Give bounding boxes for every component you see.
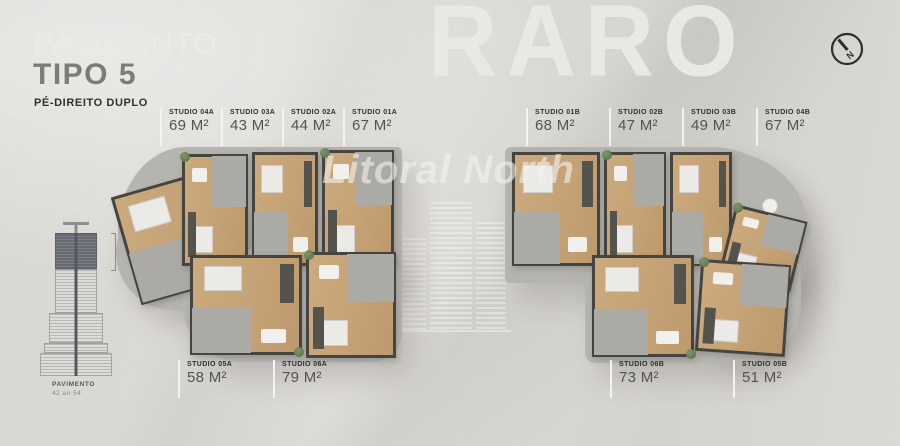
- floor-plan-unit-05a: [190, 255, 302, 355]
- building-caption-title: PAVIMENTO: [52, 380, 95, 389]
- floor-plan-unit-03b: [670, 152, 732, 266]
- unit-name: STUDIO 04A: [169, 109, 214, 116]
- plant-icon: [304, 250, 314, 260]
- compass-north-label: N: [845, 49, 856, 61]
- plant-icon: [180, 152, 190, 162]
- unit-name: STUDIO 04B: [765, 109, 810, 116]
- skyline-tower-icon: [476, 222, 506, 330]
- unit-label-studio-04b: STUDIO 04B 67 M²: [756, 108, 810, 146]
- unit-area: 58 M²: [187, 369, 232, 386]
- unit-name: STUDIO 02A: [291, 109, 336, 116]
- skyline-watermark: [392, 192, 512, 332]
- floor-range-bracket: [111, 233, 116, 271]
- unit-label-studio-05b: STUDIO 05B 51 M²: [733, 360, 787, 398]
- floor-plan-unit-02b: [604, 152, 666, 266]
- unit-name: STUDIO 01A: [352, 109, 397, 116]
- floor-plan-unit-01b: [512, 152, 600, 266]
- plant-icon: [699, 257, 710, 268]
- unit-label-studio-03b: STUDIO 03B 49 M²: [682, 108, 736, 146]
- unit-area: 69 M²: [169, 117, 214, 134]
- unit-area: 47 M²: [618, 117, 663, 134]
- unit-name: STUDIO 06A: [282, 361, 327, 368]
- unit-name: STUDIO 06B: [619, 361, 664, 368]
- unit-label-studio-03a: STUDIO 03A 43 M²: [221, 108, 275, 146]
- skyline-baseline: [392, 330, 512, 332]
- plant-icon: [294, 347, 304, 357]
- skyline-tower-icon: [430, 202, 472, 330]
- plant-icon: [320, 148, 330, 158]
- floor-plan-unit-05b: [695, 259, 791, 357]
- unit-name: STUDIO 03A: [230, 109, 275, 116]
- unit-name: STUDIO 05B: [742, 361, 787, 368]
- unit-name: STUDIO 01B: [535, 109, 580, 116]
- building-antenna-stem: [75, 225, 78, 233]
- unit-label-studio-01a: STUDIO 01A 67 M²: [343, 108, 397, 146]
- page-title-line1: PAVIMENTO: [33, 28, 218, 62]
- unit-area: 49 M²: [691, 117, 736, 134]
- unit-label-studio-05a: STUDIO 05A 58 M²: [178, 360, 232, 398]
- unit-label-studio-04a: STUDIO 04A 69 M²: [160, 108, 214, 146]
- floor-plan-unit-01a: [322, 150, 394, 266]
- page-subtitle: PÉ-DIREITO DUPLO: [34, 97, 148, 109]
- unit-area: 68 M²: [535, 117, 580, 134]
- unit-label-studio-01b: STUDIO 01B 68 M²: [526, 108, 580, 146]
- unit-label-studio-06a: STUDIO 06A 79 M²: [273, 360, 327, 398]
- building-elevation-diagram: [36, 222, 116, 376]
- floor-plan-unit-02a: [252, 152, 318, 266]
- floor-plan-unit-06a: [306, 252, 396, 358]
- building-caption-range: 42 ao 54: [52, 389, 95, 398]
- north-compass-icon: N: [825, 27, 869, 71]
- unit-label-studio-02b: STUDIO 02B 47 M²: [609, 108, 663, 146]
- plant-icon: [602, 150, 612, 160]
- unit-name: STUDIO 05A: [187, 361, 232, 368]
- floor-plan-unit-06b: [592, 255, 694, 357]
- unit-label-studio-06b: STUDIO 06B 73 M²: [610, 360, 664, 398]
- page-title-line2: TIPO 5: [33, 58, 137, 92]
- unit-area: 44 M²: [291, 117, 336, 134]
- unit-area: 43 M²: [230, 117, 275, 134]
- brand-watermark: RARO: [428, 0, 747, 99]
- unit-area: 67 M²: [352, 117, 397, 134]
- unit-label-studio-02a: STUDIO 02A 44 M²: [282, 108, 336, 146]
- floor-plan-unit-03a: [182, 154, 248, 266]
- unit-area: 79 M²: [282, 369, 327, 386]
- unit-area: 51 M²: [742, 369, 787, 386]
- building-caption: PAVIMENTO 42 ao 54: [52, 380, 95, 399]
- unit-area: 73 M²: [619, 369, 664, 386]
- unit-name: STUDIO 02B: [618, 109, 663, 116]
- unit-area: 67 M²: [765, 117, 810, 134]
- floor-plan-page: RARO Litoral North PAVIMENTO TIPO 5 PÉ-D…: [0, 0, 900, 446]
- building-core-line: [75, 233, 78, 376]
- unit-name: STUDIO 03B: [691, 109, 736, 116]
